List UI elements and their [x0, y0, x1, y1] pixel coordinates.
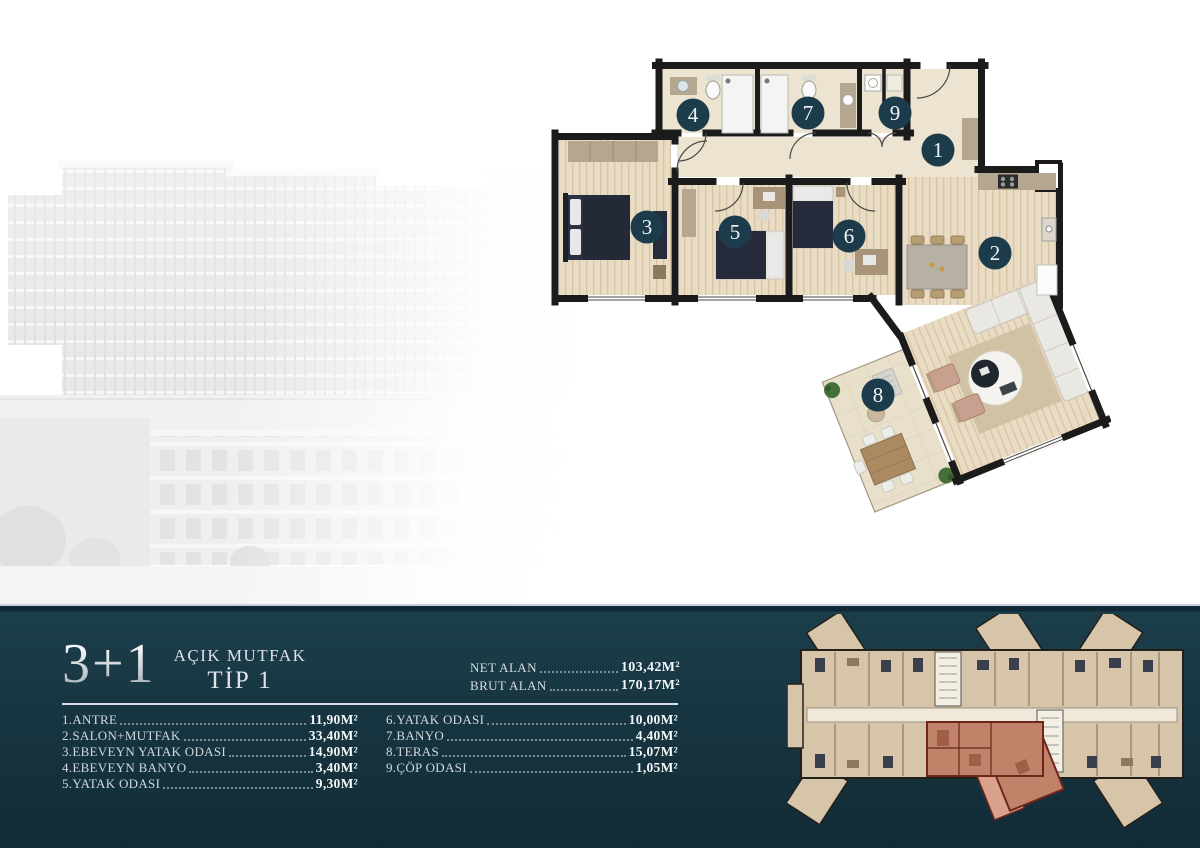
- net-area-row: NET ALAN 103,42M²: [470, 658, 680, 676]
- room-list-item: 7.BANYO4,40M²: [386, 728, 678, 744]
- room-area: 4,40M²: [636, 728, 678, 744]
- room-area: 10,00M²: [629, 712, 678, 728]
- unit-type-label: 3+1: [62, 634, 156, 694]
- room-badge: 2: [979, 237, 1012, 270]
- dining-table: [907, 236, 967, 298]
- room-area: 1,05M²: [636, 760, 678, 776]
- dotted-leader: [442, 755, 626, 757]
- plan-title-line2: TİP 1: [150, 667, 330, 695]
- info-band: 3+1 AÇIK MUTFAK TİP 1 NET ALAN 103,42M² …: [0, 604, 1200, 848]
- entry-closet: [962, 118, 978, 160]
- plan-title-line1: AÇIK MUTFAK: [150, 646, 330, 666]
- unit-floor-plan: 123456789: [551, 53, 1111, 543]
- room-name: 3.EBEVEYN YATAK ODASI: [62, 744, 226, 760]
- key-plan-svg: [787, 614, 1199, 840]
- dotted-leader: [120, 723, 306, 725]
- room-badge: 4: [677, 99, 710, 132]
- room-badge-number: 6: [844, 224, 855, 248]
- angled-section: [815, 275, 1109, 518]
- dotted-leader: [487, 723, 626, 725]
- room-badge: 7: [792, 97, 825, 130]
- room-badge: 6: [833, 220, 866, 253]
- room-list-item: 2.SALON+MUTFAK33,40M²: [62, 728, 358, 744]
- room-list-item: 3.EBEVEYN YATAK ODASI14,90M²: [62, 744, 358, 760]
- room-name: 5.YATAK ODASI: [62, 776, 160, 792]
- dotted-leader: [189, 771, 312, 773]
- net-area-value: 103,42M²: [621, 660, 680, 676]
- room-area: 33,40M²: [309, 728, 358, 744]
- room-badge-number: 9: [890, 101, 901, 125]
- room-badge: 5: [719, 216, 752, 249]
- room-list-column-2: 6.YATAK ODASI10,00M²7.BANYO4,40M²8.TERAS…: [386, 712, 678, 792]
- room-list-item: 6.YATAK ODASI10,00M²: [386, 712, 678, 728]
- room-badge-number: 1: [933, 138, 944, 162]
- brochure-page: 123456789 3+1 AÇIK MUTFAK TİP 1 NET ALAN…: [0, 0, 1200, 848]
- dotted-leader: [540, 671, 618, 673]
- room-area: 15,07M²: [629, 744, 678, 760]
- room-badge: 3: [631, 211, 664, 244]
- key-plan: [787, 614, 1199, 840]
- room-badge: 1: [922, 134, 955, 167]
- room-name: 2.SALON+MUTFAK: [62, 728, 181, 744]
- room-badge-number: 5: [730, 220, 741, 244]
- dotted-leader: [184, 739, 306, 741]
- room-name: 6.YATAK ODASI: [386, 712, 484, 728]
- room-badge-number: 2: [990, 241, 1001, 265]
- room-name: 8.TERAS: [386, 744, 439, 760]
- room-list-item: 5.YATAK ODASI9,30M²: [62, 776, 358, 792]
- dotted-leader: [550, 689, 618, 691]
- room-area: 14,90M²: [309, 744, 358, 760]
- room-badge: 8: [862, 379, 895, 412]
- area-summary: NET ALAN 103,42M² BRUT ALAN 170,17M²: [470, 658, 680, 694]
- room-badge-number: 8: [873, 383, 884, 407]
- room-list-column-1: 1.ANTRE11,90M²2.SALON+MUTFAK33,40M²3.EBE…: [62, 712, 358, 792]
- room-list-item: 4.EBEVEYN BANYO3,40M²: [62, 760, 358, 776]
- room-area: 3,40M²: [316, 760, 358, 776]
- room-name: 4.EBEVEYN BANYO: [62, 760, 186, 776]
- room-name: 9.ÇÖP ODASI: [386, 760, 467, 776]
- room-area: 11,90M²: [309, 712, 358, 728]
- net-area-label: NET ALAN: [470, 660, 537, 676]
- room-badge-number: 3: [642, 215, 653, 239]
- room-list-item: 1.ANTRE11,90M²: [62, 712, 358, 728]
- room-list-item: 8.TERAS15,07M²: [386, 744, 678, 760]
- key-plan-highlighted-unit: [927, 722, 1064, 820]
- fridge: [1037, 265, 1057, 295]
- room-badge: 9: [879, 97, 912, 130]
- room-lists: 1.ANTRE11,90M²2.SALON+MUTFAK33,40M²3.EBE…: [62, 712, 678, 792]
- room-name: 7.BANYO: [386, 728, 444, 744]
- gross-area-row: BRUT ALAN 170,17M²: [470, 676, 680, 694]
- dotted-leader: [447, 739, 633, 741]
- room-list-item: 9.ÇÖP ODASI1,05M²: [386, 760, 678, 776]
- room-name: 1.ANTRE: [62, 712, 117, 728]
- room-badge-number: 7: [803, 101, 814, 125]
- dotted-leader: [229, 755, 306, 757]
- gross-area-value: 170,17M²: [621, 678, 680, 694]
- room-area: 9,30M²: [316, 776, 358, 792]
- dotted-leader: [163, 787, 313, 789]
- dotted-leader: [470, 771, 633, 773]
- gross-area-label: BRUT ALAN: [470, 678, 547, 694]
- room-badge-number: 4: [688, 103, 699, 127]
- unit-floor-plan-svg: 123456789: [551, 53, 1111, 543]
- plan-title: AÇIK MUTFAK TİP 1: [150, 646, 330, 695]
- header-divider: [62, 703, 678, 705]
